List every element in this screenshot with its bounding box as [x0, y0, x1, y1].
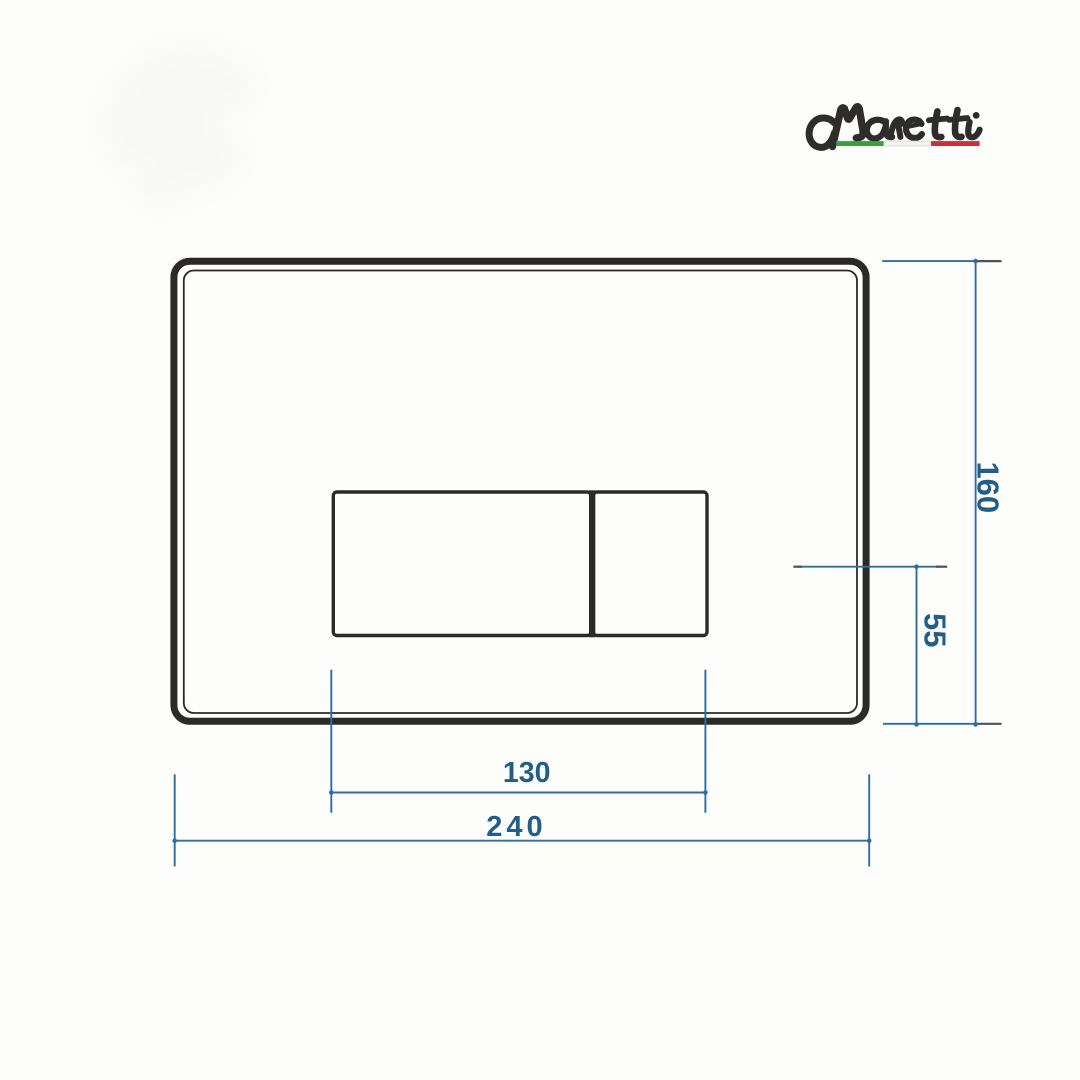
- svg-text:160: 160: [971, 461, 1006, 513]
- svg-text:240: 240: [486, 811, 546, 843]
- svg-text:130: 130: [503, 757, 551, 789]
- svg-text:55: 55: [917, 613, 952, 647]
